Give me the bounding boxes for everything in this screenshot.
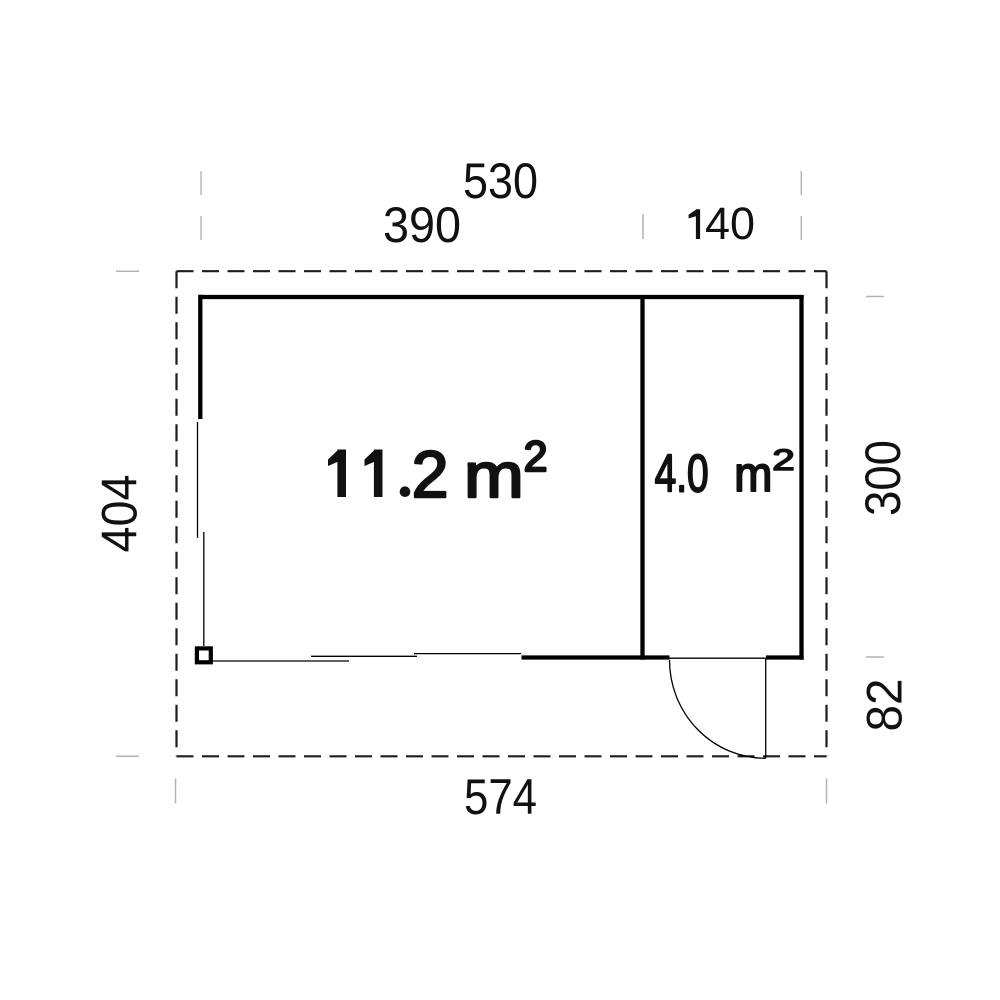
svg-text:300: 300	[855, 440, 911, 516]
svg-text:2: 2	[524, 433, 548, 481]
svg-text:m: m	[734, 448, 772, 503]
svg-text:4.0: 4.0	[655, 444, 709, 503]
svg-text:2: 2	[772, 443, 795, 477]
svg-text:m: m	[464, 441, 524, 511]
svg-text:530: 530	[463, 153, 538, 209]
svg-text:2: 2	[412, 437, 449, 511]
svg-text:390: 390	[383, 197, 461, 253]
svg-text:404: 404	[92, 475, 148, 553]
svg-text:40: 40	[705, 198, 755, 249]
svg-text:574: 574	[464, 769, 537, 825]
svg-text:82: 82	[857, 679, 913, 732]
